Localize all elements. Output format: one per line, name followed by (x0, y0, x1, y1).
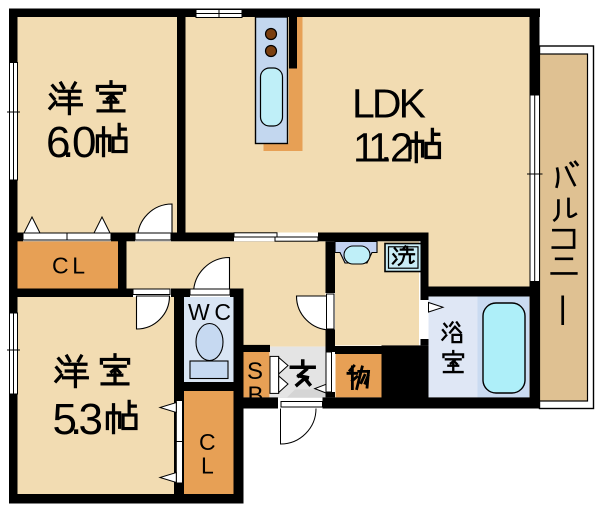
svg-text:3: 3 (79, 395, 103, 444)
svg-text:S: S (247, 358, 263, 385)
svg-text:LDK: LDK (352, 81, 426, 127)
svg-text:L: L (201, 453, 214, 479)
svg-text:C: C (199, 429, 216, 455)
svg-text:CL: CL (52, 253, 85, 279)
svg-text:0: 0 (72, 118, 96, 167)
svg-text:WC: WC (188, 299, 231, 325)
